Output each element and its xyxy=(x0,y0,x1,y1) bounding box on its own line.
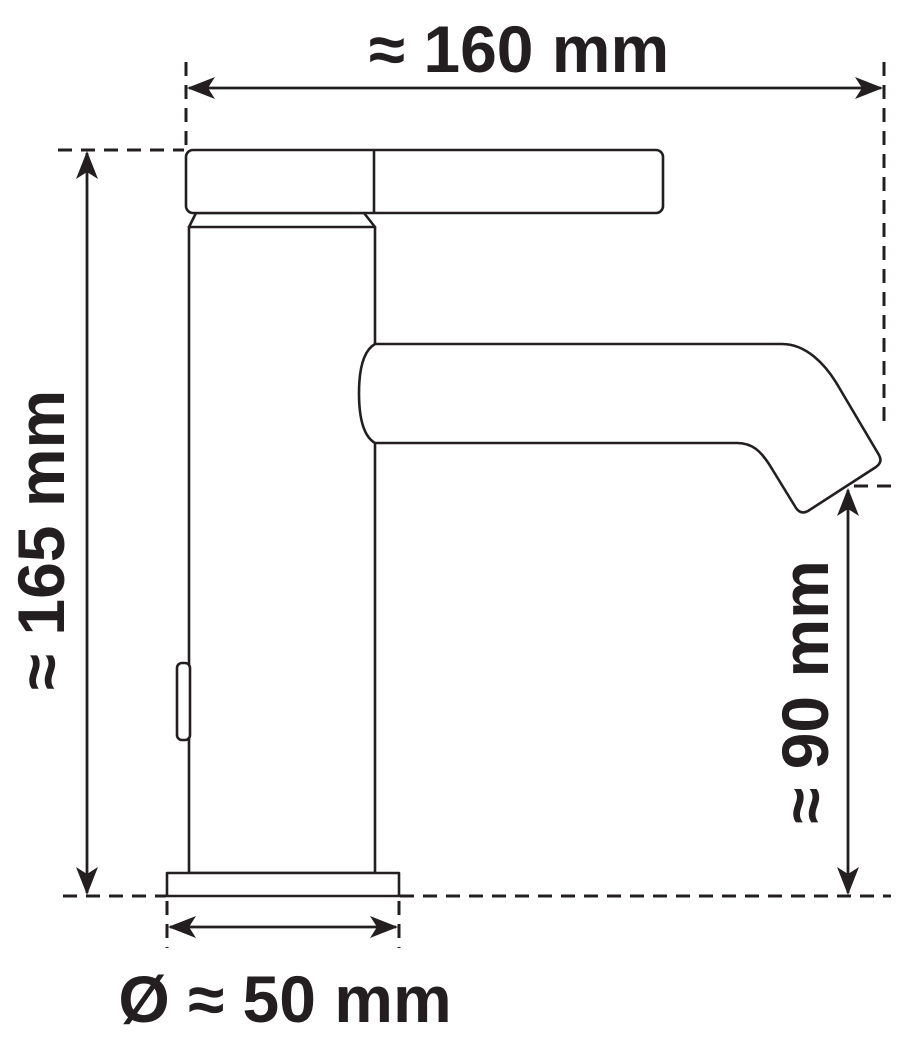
diagram-canvas: ≈ 160 mm ≈ 165 mm ≈ 90 mm Ø ≈ 50 mm xyxy=(0,0,899,1048)
technical-drawing: ≈ 160 mm ≈ 165 mm ≈ 90 mm Ø ≈ 50 mm xyxy=(0,0,899,1048)
faucet-body xyxy=(189,213,375,873)
dimension-label-spout-height: ≈ 90 mm xyxy=(768,560,842,824)
lever-handle xyxy=(186,150,663,213)
dimension-label-height: ≈ 165 mm xyxy=(4,390,78,690)
side-button xyxy=(177,663,190,740)
base-plate xyxy=(167,873,399,896)
dimension-label-width: ≈ 160 mm xyxy=(369,12,669,86)
spout xyxy=(359,344,880,512)
dimension-label-diameter: Ø ≈ 50 mm xyxy=(118,962,451,1036)
